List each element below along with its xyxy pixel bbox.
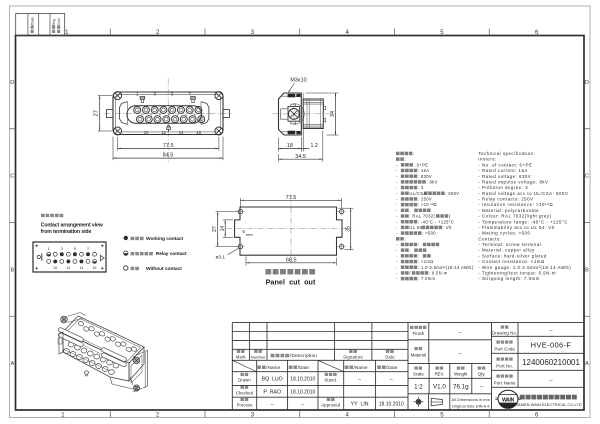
svg-text:: 16A: : 16A: [418, 168, 429, 173]
svg-text:: 1.0-2.5mm²(18-14 AWG): : 1.0-2.5mm²(18-14 AWG): [418, 265, 474, 270]
svg-text:: >10: : >10: [418, 202, 429, 207]
svg-text:- Surface: hard-silver plated: - Surface: hard-silver plated: [478, 253, 546, 258]
svg-text:- Insulation resistance: >1010: - Insulation resistance: >1010Ω: [478, 202, 553, 207]
svg-text:- Material: polycarbonate: - Material: polycarbonate: [478, 208, 539, 213]
svg-text:- Stripping length: 7.0mm: - Stripping length: 7.0mm: [478, 276, 540, 281]
svg-text:Process: Process: [237, 403, 253, 408]
svg-text::: :: [409, 248, 411, 253]
svg-text:/Date: /Date: [31, 17, 35, 26]
svg-text::: :: [409, 208, 411, 213]
svg-text:7: 7: [87, 247, 89, 251]
svg-text:-: -: [396, 179, 398, 184]
svg-text:: 830V: : 830V: [418, 174, 432, 179]
svg-text:: 3: : 3: [418, 185, 424, 190]
svg-text:- Rated impulse voltage: 8kV: - Rated impulse voltage: 8kV: [478, 179, 548, 184]
svg-text:1:2: 1:2: [414, 384, 423, 391]
svg-text:: 250V: : 250V: [418, 197, 432, 202]
svg-text:-: -: [396, 276, 398, 281]
svg-text:- Relay contacts: 250V: - Relay contacts: 250V: [478, 197, 533, 202]
svg-text:ø3.1: ø3.1: [216, 254, 226, 260]
svg-text:: 0.5N·m: : 0.5N·m: [429, 270, 448, 275]
svg-text:B: B: [585, 267, 589, 273]
svg-text:-: -: [396, 214, 398, 219]
svg-text:/Description: /Description: [290, 353, 317, 359]
svg-text:B: B: [10, 267, 14, 273]
svg-text:Drawing No.: Drawing No.: [492, 330, 517, 335]
svg-text:Stand.: Stand.: [324, 378, 337, 383]
svg-text:/Name: /Name: [266, 365, 280, 370]
svg-text:18.10.2010: 18.10.2010: [379, 402, 404, 408]
svg-text:- Material: copper alloy: - Material: copper alloy: [478, 248, 535, 253]
svg-text:-: -: [396, 191, 398, 196]
svg-text:10: 10: [144, 130, 149, 135]
svg-text:- Colour: RAL 7032(light grey): - Colour: RAL 7032(light grey): [478, 214, 551, 219]
svg-text:BQ LUO: BQ LUO: [262, 377, 283, 383]
svg-text:27: 27: [94, 110, 100, 116]
svg-text:-: -: [396, 168, 398, 173]
svg-text:Mark: Mark: [236, 355, 247, 360]
svg-text:-: -: [396, 208, 398, 213]
svg-text:1: 1: [48, 247, 50, 251]
svg-text:- Pollution degree: 3: - Pollution degree: 3: [478, 185, 528, 190]
svg-text:–: –: [390, 377, 393, 383]
svg-text:Material: Material: [411, 353, 426, 358]
svg-text::: :: [413, 151, 415, 156]
svg-text:/Date: /Date: [298, 365, 310, 370]
svg-text:Relay contact: Relay contact: [156, 251, 187, 257]
svg-text:Insters:: Insters:: [478, 157, 496, 162]
svg-text:16: 16: [93, 266, 97, 270]
svg-text:12: 12: [161, 130, 166, 135]
svg-text:34.5: 34.5: [295, 154, 306, 160]
svg-text:18: 18: [287, 143, 293, 149]
svg-text:Date: Date: [385, 355, 395, 360]
svg-text:16: 16: [196, 130, 201, 135]
svg-text:-: -: [396, 265, 398, 270]
svg-text:-: -: [396, 248, 398, 253]
svg-text:V1.0: V1.0: [433, 384, 446, 391]
svg-text:Working contact: Working contact: [146, 236, 183, 242]
svg-text:5: 5: [74, 247, 76, 251]
svg-text:18.10.2010: 18.10.2010: [290, 377, 315, 383]
svg-text:14: 14: [220, 226, 226, 232]
svg-text:Original Size DIN A 4: Original Size DIN A 4: [452, 404, 490, 408]
svg-text:WAIN: WAIN: [502, 398, 515, 404]
svg-text:-: -: [396, 185, 398, 190]
svg-text:- Terminal: screw terminal: - Terminal: screw terminal: [478, 242, 541, 247]
svg-text::: :: [418, 242, 420, 247]
svg-text:- Contact resistance: <1mΩ: - Contact resistance: <1mΩ: [478, 259, 545, 264]
svg-text:Qty.: Qty.: [478, 372, 486, 377]
svg-text:35: 35: [345, 226, 351, 232]
svg-text:Port Name: Port Name: [494, 381, 516, 386]
svg-text:YY LIN: YY LIN: [351, 402, 369, 408]
svg-text:- Mating cycles: >500: - Mating cycles: >500: [478, 231, 530, 236]
svg-text:Panel cut out: Panel cut out: [266, 277, 316, 286]
svg-text:Reg: Reg: [52, 19, 56, 26]
svg-text:Contacts:: Contacts:: [478, 236, 501, 241]
svg-text:XIAMEN WAIN ELECTRICAL CO.LTD: XIAMEN WAIN ELECTRICAL CO.LTD: [514, 402, 582, 407]
svg-text:-: -: [396, 202, 398, 207]
svg-text:M3x10: M3x10: [290, 78, 306, 84]
svg-text:- Tightening/test torque: 0.5N: - Tightening/test torque: 0.5N·m: [478, 270, 556, 275]
svg-text:D: D: [10, 80, 14, 86]
svg-text:: 7.0mm: : 7.0mm: [418, 276, 436, 281]
svg-text:: >500: : >500: [422, 231, 436, 236]
svg-text:P RAO: P RAO: [263, 389, 281, 395]
svg-text:A: A: [585, 361, 589, 367]
svg-text:Part Code: Part Code: [494, 347, 515, 352]
svg-text:27: 27: [212, 226, 218, 232]
svg-text:-: -: [396, 219, 398, 224]
svg-text:): ): [449, 214, 451, 219]
svg-text:- No. of contact: 6+PE: - No. of contact: 6+PE: [478, 162, 532, 167]
svg-text:-: -: [396, 270, 398, 275]
svg-text:: V0: : V0: [443, 225, 452, 230]
svg-text:- Rated voltage: 830V: - Rated voltage: 830V: [478, 174, 531, 179]
svg-text:- Flammability acc.to UL 94: V: - Flammability acc.to UL 94: V0: [478, 225, 554, 230]
svg-text:Ω: Ω: [434, 202, 437, 207]
svg-text::: :: [405, 157, 407, 162]
svg-text:68.5: 68.5: [286, 257, 297, 263]
svg-text:–: –: [358, 377, 361, 383]
svg-text:Cmk: Cmk: [57, 18, 61, 26]
svg-text:: 600V: : 600V: [445, 191, 459, 196]
svg-text::: :: [405, 236, 407, 241]
svg-text:D: D: [585, 80, 589, 86]
svg-text:-: -: [396, 242, 398, 247]
svg-text:5: 5: [242, 229, 245, 234]
svg-text:Port No.: Port No.: [496, 364, 513, 369]
svg-text:/Date: /Date: [386, 365, 398, 370]
svg-text:14: 14: [179, 130, 184, 135]
svg-text:Signature: Signature: [343, 355, 363, 360]
svg-text:10: 10: [53, 266, 57, 270]
svg-text:-: -: [396, 231, 398, 236]
svg-text:-: -: [396, 253, 398, 258]
svg-text:- Rated voltage acc.to UL/CSA:: - Rated voltage acc.to UL/CSA: 600V: [478, 191, 568, 196]
svg-text:: -40°C - +125°C: : -40°C - +125°C: [418, 219, 454, 224]
svg-text:-: -: [396, 162, 398, 167]
svg-text:3: 3: [61, 247, 63, 251]
svg-text:14: 14: [80, 266, 84, 270]
svg-text:: 8kV: : 8kV: [427, 179, 438, 184]
svg-text:-: -: [396, 259, 398, 264]
svg-text:All Dimensions in mm: All Dimensions in mm: [451, 398, 490, 402]
svg-text:- Wire gauge: 1.0-2.5mm²(18-14: - Wire gauge: 1.0-2.5mm²(18-14 AWG): [478, 265, 571, 270]
svg-text:18.10.2010: 18.10.2010: [290, 389, 315, 395]
svg-text:77.5: 77.5: [163, 143, 174, 149]
svg-text:–: –: [271, 402, 274, 408]
svg-text:REV.: REV.: [435, 372, 445, 377]
svg-text:1240060210001: 1240060210001: [522, 358, 580, 367]
svg-text:/Name: /Name: [354, 365, 368, 370]
svg-text:C: C: [10, 174, 14, 180]
svg-text:Weight: Weight: [454, 372, 468, 377]
svg-text:34: 34: [330, 111, 336, 117]
svg-text:-: -: [396, 225, 398, 230]
svg-text:-: -: [396, 174, 398, 179]
svg-text:- Rated current: 16A: - Rated current: 16A: [478, 168, 528, 173]
svg-text:77.5: 77.5: [286, 195, 297, 201]
svg-text::: :: [418, 253, 420, 258]
svg-text:UL/CSA: UL/CSA: [409, 191, 426, 196]
svg-text:: RAL 7032(: : RAL 7032(: [409, 214, 435, 219]
svg-text:UL 94: UL 94: [409, 225, 422, 230]
svg-text:76.1g: 76.1g: [453, 384, 469, 391]
svg-text:-: -: [396, 197, 398, 202]
svg-text:from termination side: from termination side: [41, 229, 92, 235]
svg-text:Without contact: Without contact: [146, 266, 182, 272]
svg-text:Scale: Scale: [413, 372, 424, 377]
svg-text:Finish: Finish: [413, 331, 425, 336]
svg-text:–: –: [301, 402, 304, 408]
svg-text:: 6+PE: : 6+PE: [414, 162, 429, 167]
svg-text:Drawn: Drawn: [238, 378, 251, 383]
svg-text:84.5: 84.5: [163, 153, 174, 159]
svg-text:C: C: [585, 174, 589, 180]
svg-text:Approved: Approved: [321, 403, 340, 408]
svg-text:Technical specification:: Technical specification:: [478, 151, 535, 156]
svg-text:- Temperature range: -40°C - +: - Temperature range: -40°C - +125°C: [478, 219, 568, 224]
svg-text:12: 12: [66, 266, 70, 270]
svg-text:Contact arrangement view: Contact arrangement view: [41, 222, 104, 228]
svg-text:Number: Number: [251, 355, 266, 360]
svg-text:: <1mΩ: : <1mΩ: [418, 259, 434, 264]
svg-text:1.2: 1.2: [311, 143, 318, 149]
svg-text:HVE-006-F: HVE-006-F: [531, 340, 572, 349]
svg-text:Checked: Checked: [236, 391, 254, 396]
svg-text:A: A: [10, 361, 14, 367]
